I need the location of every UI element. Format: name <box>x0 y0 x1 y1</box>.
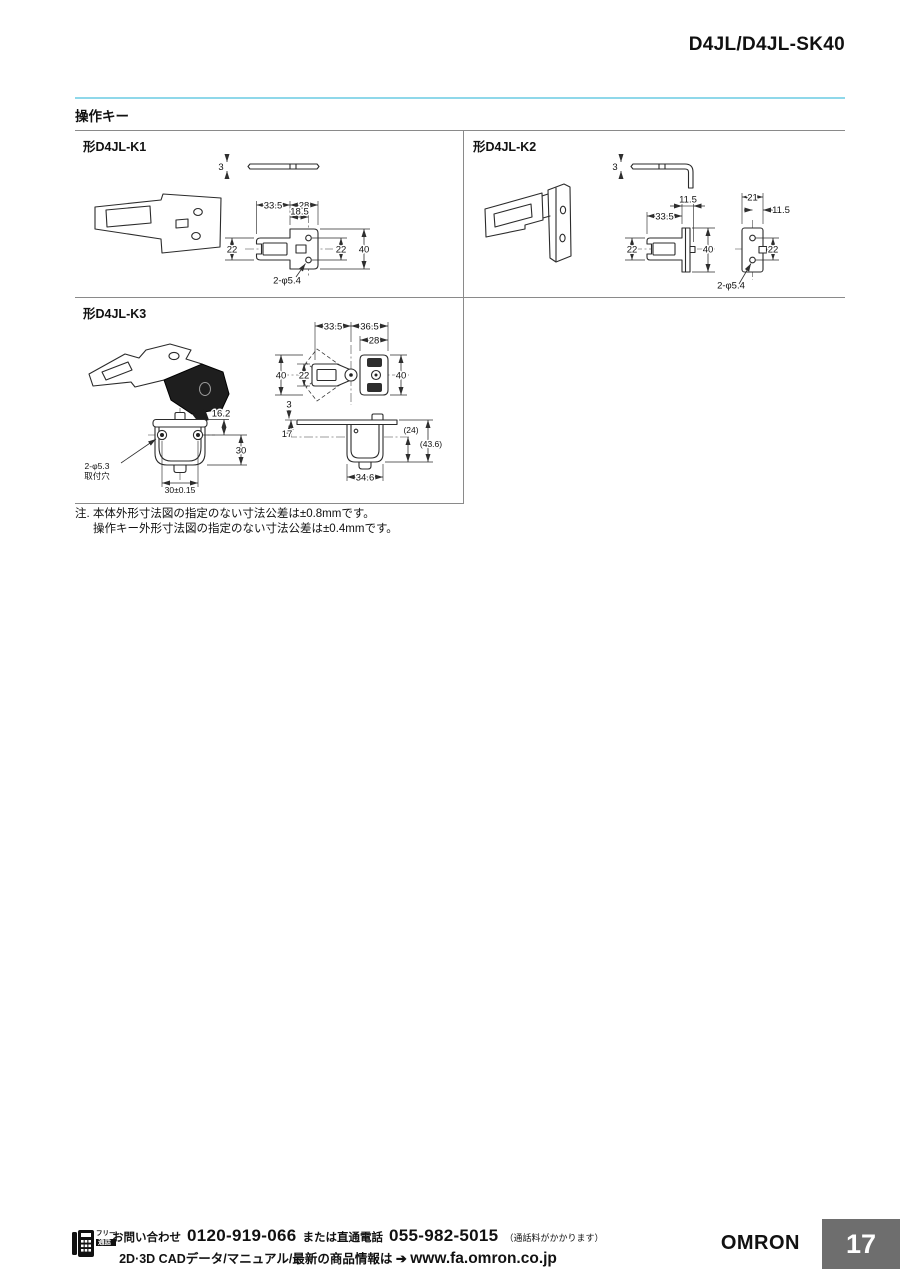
k3-dim-thickness: 3 <box>286 400 291 411</box>
catalog-page: { "page": { "title": "D4JL/D4JL-SK40", "… <box>0 0 900 1272</box>
k3-dim-holes-1: 2-φ5.3 <box>85 461 110 471</box>
k2-isometric-view <box>485 184 571 262</box>
note-line-1: 注. 本体外形寸法図の指定のない寸法公差は±0.8mmです。 <box>75 507 398 522</box>
direct-phone-number: 055-982-5015 <box>389 1226 498 1246</box>
k2-dim-115-right: 11.5 <box>772 205 790 216</box>
operation-key-table: 形D4JL-K1 形D4JL-K2 形D4JL-K3 3 <box>75 130 845 504</box>
k3-dim-30: 30 <box>236 446 247 457</box>
free-call-badge: フリー 通話 <box>72 1230 116 1257</box>
k2-dim-40: 40 <box>703 245 714 256</box>
free-phone-number: 0120-919-066 <box>187 1226 296 1246</box>
k1-dim-22-right: 22 <box>336 245 347 256</box>
k3-dim-436: (43.6) <box>420 439 442 449</box>
k3-dim-346: 34.6 <box>356 473 375 484</box>
accent-rule <box>75 97 845 99</box>
k1-dim-185: 18.5 <box>290 207 309 218</box>
k2-dim-thickness: 3 <box>612 162 617 173</box>
k1-dim-thickness: 3 <box>218 162 223 173</box>
website-url: www.fa.omron.co.jp <box>410 1250 557 1267</box>
omron-logo: OMRON <box>700 1232 800 1255</box>
k3-dim-holes-2: 取付穴 <box>84 471 110 481</box>
direct-label: または直通電話 <box>302 1229 383 1245</box>
k2-side-view: 3 <box>612 154 693 188</box>
call-charge-note: （通話料がかかります） <box>504 1231 603 1244</box>
k2-dim-holes: 2-φ5.4 <box>717 281 745 292</box>
k2-dim-22-left: 22 <box>627 245 638 256</box>
page-number-box: 17 <box>822 1219 900 1269</box>
contact-line-1: お問い合わせ 0120-919-066 または直通電話 055-982-5015… <box>112 1226 564 1246</box>
k3-isometric-view <box>89 344 229 423</box>
k1-dimension-drawing: 3 33.5 28 18.5 22 <box>75 130 463 297</box>
k1-top-view: 33.5 28 18.5 22 22 40 2-φ5.4 <box>225 201 370 287</box>
k3-dim-22: 22 <box>299 371 310 382</box>
k3-dim-40-right: 40 <box>396 371 407 382</box>
k3-dim-17: 17 <box>282 429 293 440</box>
k1-dim-335: 33.5 <box>264 201 283 212</box>
k1-isometric-view <box>95 194 221 253</box>
k2-dim-22-right: 22 <box>768 245 779 256</box>
k2-dimension-drawing: 3 33.5 11.5 22 40 <box>463 130 845 297</box>
arrow-icon: ➔ <box>396 1251 407 1266</box>
cad-info-text: 2D·3D CADデータ/マニュアル/最新の商品情報は <box>119 1252 392 1266</box>
k2-end-view: 21 11.5 22 2-φ5.4 <box>717 193 790 292</box>
table-border-bottom <box>75 503 463 504</box>
k3-dim-30t: 30±0.15 <box>165 485 196 495</box>
k3-dim-40-left: 40 <box>276 371 287 382</box>
k3-dim-24: (24) <box>403 425 418 435</box>
k1-dim-22-left: 22 <box>227 245 238 256</box>
k1-side-view: 3 <box>218 154 319 179</box>
k3-side-view: 3 17 (24) (43.6) 34.6 <box>282 400 443 484</box>
k3-top-view: 33.5 36.5 28 40 22 40 <box>275 322 409 406</box>
section-title: 操作キー <box>75 105 129 125</box>
k3-dim-365: 36.5 <box>360 322 379 333</box>
k3-front-view: 16.2 30 2-φ5.3 取付穴 30±0.15 <box>84 408 247 495</box>
footer-contact: お問い合わせ 0120-919-066 または直通電話 055-982-5015… <box>112 1226 564 1268</box>
k3-dim-28: 28 <box>369 336 380 347</box>
contact-line-2: 2D·3D CADデータ/マニュアル/最新の商品情報は ➔ www.fa.omr… <box>112 1248 564 1268</box>
k2-top-view: 33.5 11.5 22 40 <box>625 195 715 273</box>
contact-label: お問い合わせ <box>112 1229 181 1245</box>
k3-dim-335: 33.5 <box>324 322 343 333</box>
k2-dim-335: 33.5 <box>655 212 674 223</box>
phone-icon <box>72 1230 94 1257</box>
k3-dimension-drawing: 33.5 36.5 28 40 22 40 <box>75 297 463 503</box>
page-title: D4JL/D4JL-SK40 <box>689 34 845 56</box>
k1-dim-holes: 2-φ5.4 <box>273 276 301 287</box>
k2-dim-115-top: 11.5 <box>679 195 697 206</box>
note-line-2: 操作キー外形寸法図の指定のない寸法公差は±0.4mmです。 <box>75 522 398 537</box>
tolerance-note: 注. 本体外形寸法図の指定のない寸法公差は±0.8mmです。 操作キー外形寸法図… <box>75 507 398 537</box>
k1-dim-40: 40 <box>359 245 370 256</box>
k3-dim-162: 16.2 <box>212 409 231 420</box>
k2-dim-21: 21 <box>747 193 758 204</box>
